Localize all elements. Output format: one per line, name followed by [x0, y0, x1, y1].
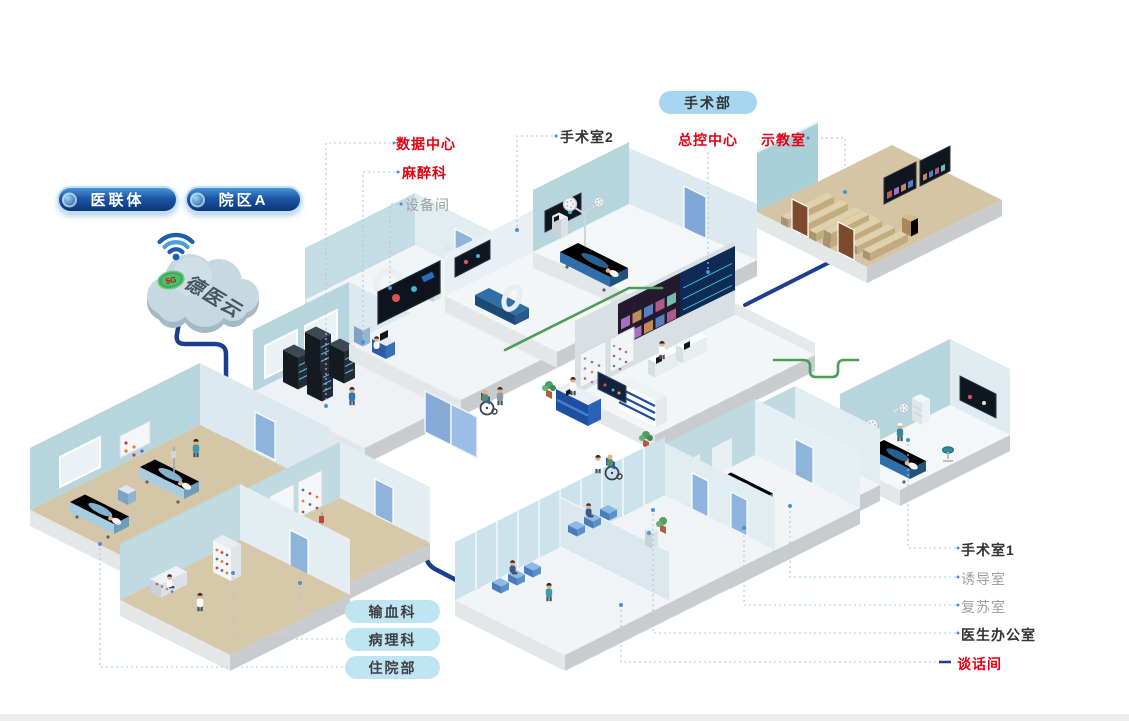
- label-anesthesia: 麻醉科: [402, 165, 447, 181]
- label-or2: 手术室2: [560, 129, 614, 145]
- tab-medical-alliance[interactable]: 医联体: [57, 186, 178, 213]
- label-induction-room: 诱导室: [961, 571, 1006, 587]
- tab-medical-alliance-label: 医联体: [90, 189, 144, 210]
- pill-pathology: 病理科: [345, 628, 440, 651]
- scene-canvas: OR3OR2: [0, 0, 1129, 721]
- label-doctor-office: 医生办公室: [961, 627, 1036, 643]
- surgery-department-badge: 手术部: [659, 91, 757, 114]
- tab-campus-a-label: 院区A: [219, 189, 269, 210]
- label-equipment-room: 设备间: [405, 197, 450, 213]
- label-master-control: 总控中心: [678, 132, 738, 148]
- label-recovery-room: 复苏室: [961, 599, 1006, 615]
- plant: [542, 381, 556, 399]
- cloud-icon: 德医云 5G: [147, 254, 259, 333]
- pill-cap-icon: [190, 192, 205, 207]
- page-bottom-strip: [0, 714, 1129, 721]
- tab-campus-a[interactable]: 院区A: [185, 186, 302, 213]
- label-data-center: 数据中心: [396, 136, 456, 152]
- label-demo-room: 示教室: [761, 132, 806, 148]
- label-talk-room: 谈话间: [957, 656, 1002, 672]
- pill-blood-transfusion: 输血科: [345, 600, 440, 623]
- pill-cap-icon: [62, 192, 77, 207]
- smart-hospital-diagram: OR3OR2: [0, 0, 1129, 721]
- label-or1: 手术室1: [961, 542, 1015, 558]
- pill-inpatient: 住院部: [345, 656, 440, 679]
